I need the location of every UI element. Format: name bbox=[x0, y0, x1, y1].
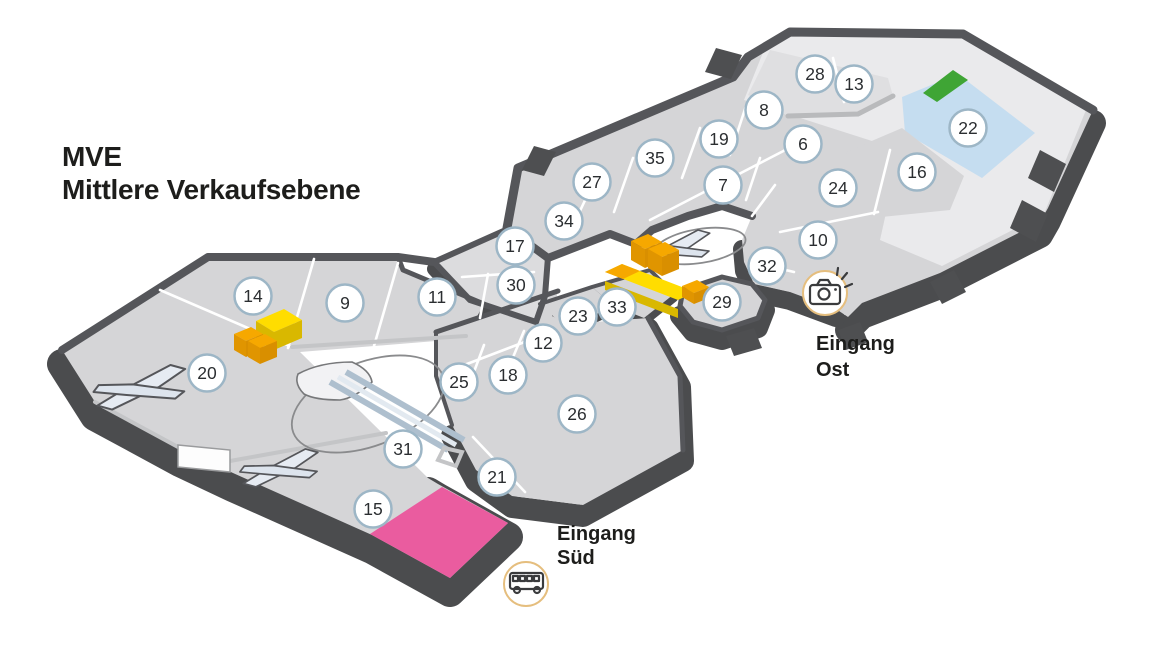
svg-text:18: 18 bbox=[498, 365, 517, 385]
svg-text:34: 34 bbox=[554, 211, 574, 231]
mall-floorplan-page: 6789101112131415161718192021222324252627… bbox=[0, 0, 1160, 651]
unit-marker-21[interactable]: 21 bbox=[479, 459, 516, 496]
unit-marker-30[interactable]: 30 bbox=[498, 267, 535, 304]
svg-text:7: 7 bbox=[718, 175, 728, 195]
unit-marker-29[interactable]: 29 bbox=[704, 284, 741, 321]
svg-text:9: 9 bbox=[340, 293, 350, 313]
unit-marker-26[interactable]: 26 bbox=[559, 396, 596, 433]
svg-text:13: 13 bbox=[844, 74, 863, 94]
unit-marker-31[interactable]: 31 bbox=[385, 431, 422, 468]
unit-marker-11[interactable]: 11 bbox=[419, 279, 456, 316]
entrance-sued: Eingang Süd bbox=[504, 523, 641, 606]
floorplan-canvas: 6789101112131415161718192021222324252627… bbox=[0, 0, 1160, 651]
svg-text:22: 22 bbox=[958, 118, 977, 138]
unit-marker-14[interactable]: 14 bbox=[235, 278, 272, 315]
svg-text:12: 12 bbox=[533, 333, 552, 353]
unit-marker-10[interactable]: 10 bbox=[800, 222, 837, 259]
svg-text:27: 27 bbox=[582, 172, 601, 192]
unit-marker-7[interactable]: 7 bbox=[705, 167, 742, 204]
floor-void bbox=[178, 445, 230, 472]
unit-marker-24[interactable]: 24 bbox=[820, 170, 857, 207]
unit-marker-33[interactable]: 33 bbox=[599, 289, 636, 326]
svg-text:11: 11 bbox=[428, 287, 446, 307]
svg-text:31: 31 bbox=[393, 439, 412, 459]
unit-marker-20[interactable]: 20 bbox=[189, 355, 226, 392]
svg-text:20: 20 bbox=[197, 363, 217, 383]
svg-text:23: 23 bbox=[568, 306, 587, 326]
unit-marker-35[interactable]: 35 bbox=[637, 140, 674, 177]
unit-marker-9[interactable]: 9 bbox=[327, 285, 364, 322]
unit-marker-12[interactable]: 12 bbox=[525, 325, 562, 362]
svg-text:21: 21 bbox=[487, 467, 506, 487]
unit-marker-19[interactable]: 19 bbox=[701, 121, 738, 158]
entrance-sued-label: Eingang Süd bbox=[557, 523, 641, 569]
svg-text:25: 25 bbox=[449, 372, 468, 392]
svg-text:6: 6 bbox=[798, 134, 808, 154]
title-line-1: MVE bbox=[62, 140, 360, 173]
ramp-end bbox=[438, 448, 462, 466]
svg-text:26: 26 bbox=[567, 404, 586, 424]
svg-text:14: 14 bbox=[243, 286, 263, 306]
svg-text:32: 32 bbox=[757, 256, 776, 276]
svg-text:16: 16 bbox=[907, 162, 926, 182]
unit-marker-18[interactable]: 18 bbox=[490, 357, 527, 394]
svg-text:19: 19 bbox=[709, 129, 728, 149]
unit-marker-8[interactable]: 8 bbox=[746, 92, 783, 129]
svg-text:8: 8 bbox=[759, 100, 769, 120]
svg-text:28: 28 bbox=[805, 64, 824, 84]
svg-text:33: 33 bbox=[607, 297, 626, 317]
title-line-2: Mittlere Verkaufsebene bbox=[62, 173, 360, 206]
kiosk-box-orange bbox=[631, 234, 679, 276]
unit-marker-28[interactable]: 28 bbox=[797, 56, 834, 93]
unit-marker-16[interactable]: 16 bbox=[899, 154, 936, 191]
unit-marker-25[interactable]: 25 bbox=[441, 364, 478, 401]
svg-text:24: 24 bbox=[828, 178, 848, 198]
page-title: MVE Mittlere Verkaufsebene bbox=[62, 140, 360, 206]
unit-marker-27[interactable]: 27 bbox=[574, 164, 611, 201]
bus-icon[interactable] bbox=[504, 562, 548, 606]
unit-marker-6[interactable]: 6 bbox=[785, 126, 822, 163]
unit-marker-23[interactable]: 23 bbox=[560, 298, 597, 335]
unit-marker-15[interactable]: 15 bbox=[355, 491, 392, 528]
unit-marker-13[interactable]: 13 bbox=[836, 66, 873, 103]
entrance-ost-label: Eingang Ost bbox=[816, 333, 900, 381]
svg-text:10: 10 bbox=[808, 230, 828, 250]
svg-text:29: 29 bbox=[712, 292, 731, 312]
unit-marker-34[interactable]: 34 bbox=[546, 203, 583, 240]
svg-text:17: 17 bbox=[505, 236, 524, 256]
unit-marker-17[interactable]: 17 bbox=[497, 228, 534, 265]
unit-marker-22[interactable]: 22 bbox=[950, 110, 987, 147]
unit-marker-32[interactable]: 32 bbox=[749, 248, 786, 285]
svg-text:30: 30 bbox=[506, 275, 526, 295]
svg-text:35: 35 bbox=[645, 148, 664, 168]
svg-text:15: 15 bbox=[363, 499, 382, 519]
